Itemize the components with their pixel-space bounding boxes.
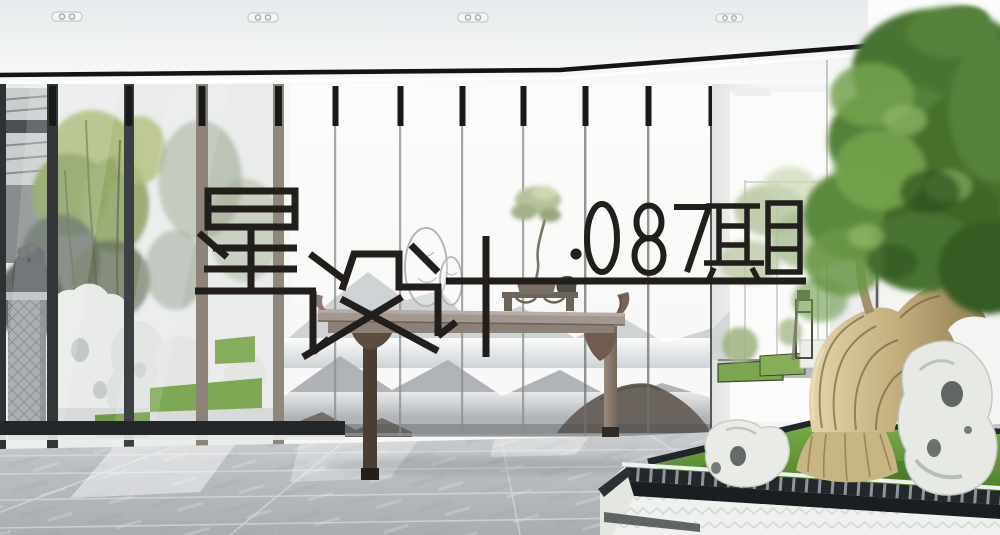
- scene-artwork: [0, 0, 1000, 535]
- taihu-rock-right: [898, 341, 997, 495]
- cover-image: 星设计 ·087期: [0, 0, 1000, 535]
- window-bottom-frame: [0, 421, 345, 435]
- taihu-rock-left: [705, 420, 789, 487]
